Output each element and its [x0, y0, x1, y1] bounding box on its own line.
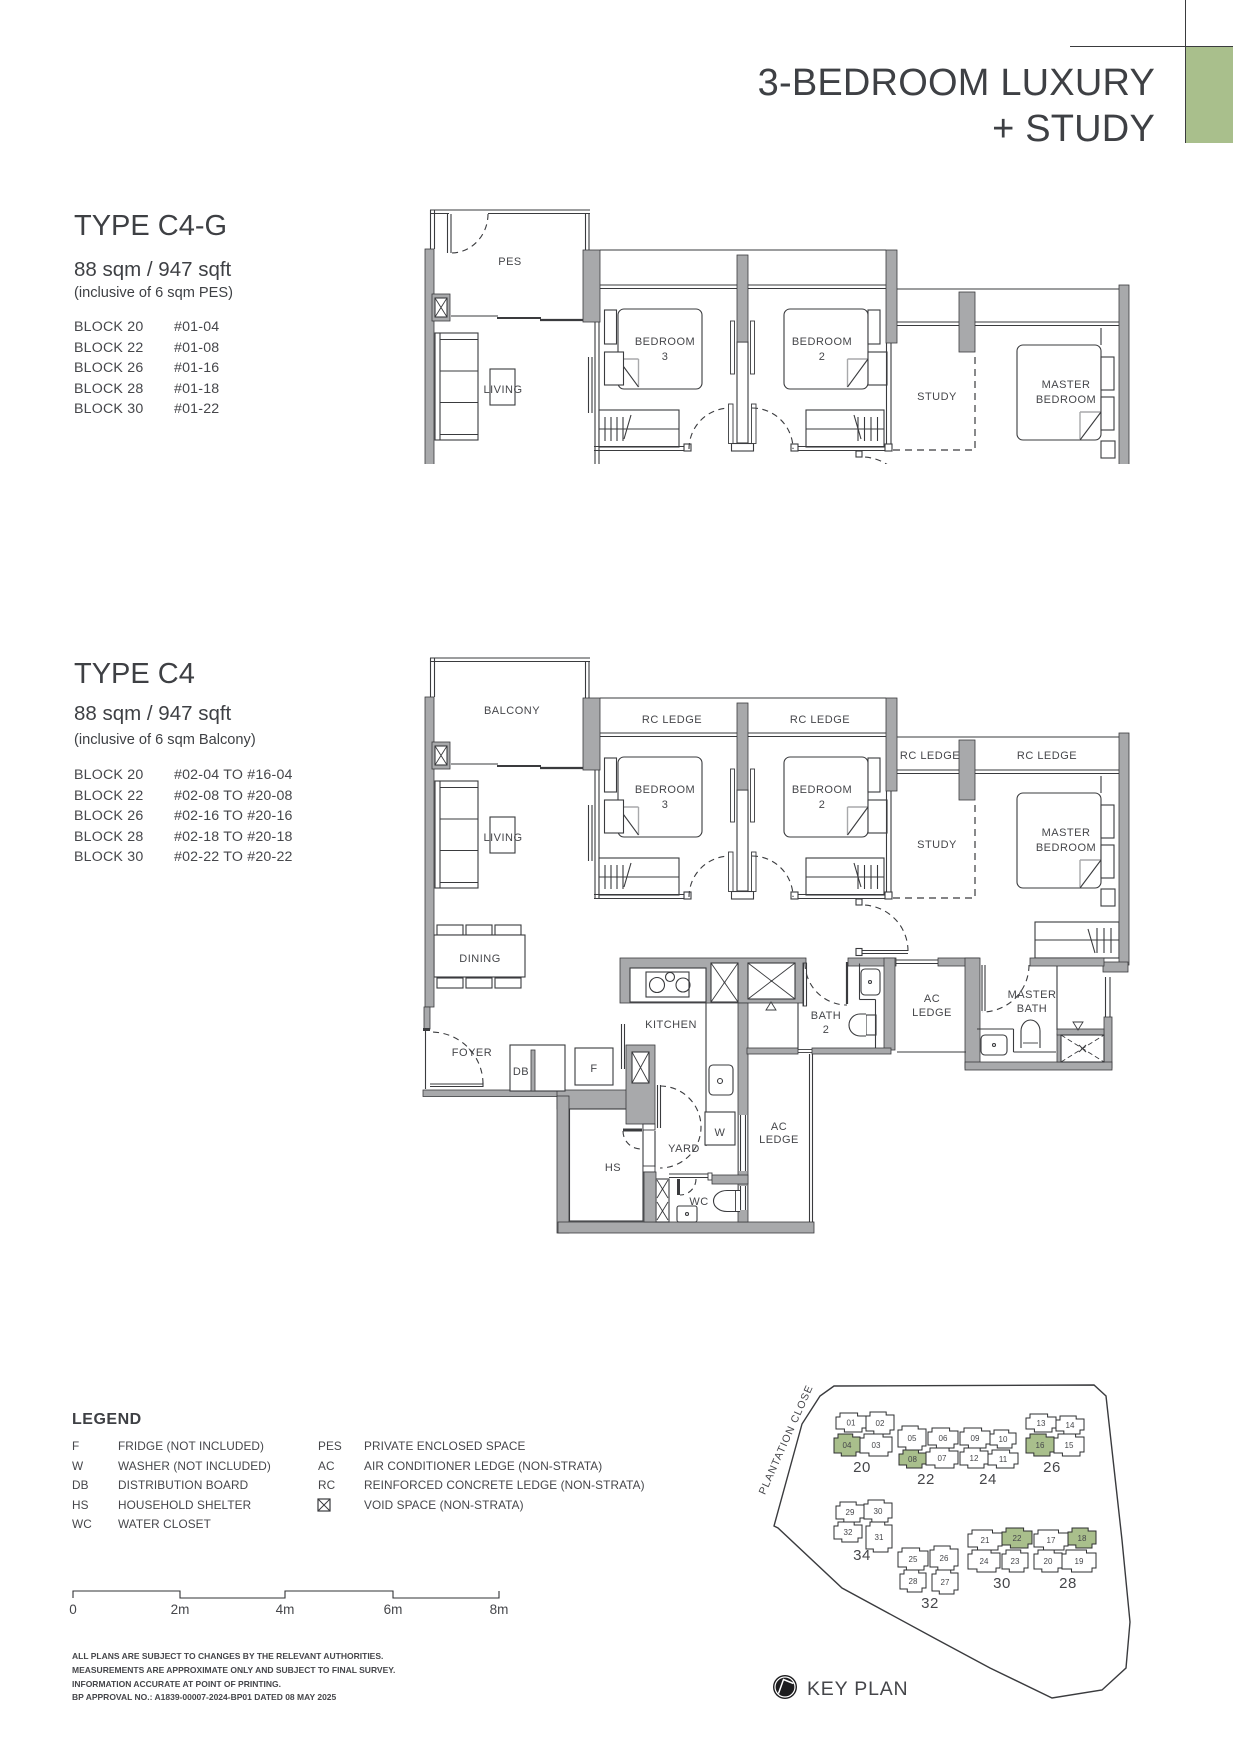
svg-text:23: 23 [1011, 1557, 1020, 1566]
svg-text:15: 15 [1065, 1441, 1074, 1450]
svg-text:F: F [590, 1063, 597, 1075]
svg-text:09: 09 [971, 1434, 980, 1443]
svg-text:27: 27 [941, 1578, 950, 1587]
svg-text:3: 3 [662, 351, 669, 363]
svg-text:DB: DB [513, 1066, 529, 1078]
svg-text:10: 10 [999, 1435, 1008, 1444]
svg-text:LIVING: LIVING [483, 832, 522, 844]
svg-text:11: 11 [999, 1455, 1008, 1464]
svg-text:LEDGE: LEDGE [759, 1134, 799, 1146]
svg-text:28: 28 [1059, 1575, 1077, 1592]
svg-text:22: 22 [917, 1471, 935, 1488]
svg-text:19: 19 [1075, 1557, 1084, 1566]
svg-text:26: 26 [1043, 1459, 1061, 1476]
svg-text:32: 32 [921, 1595, 939, 1612]
svg-text:BATH: BATH [1017, 1003, 1048, 1015]
svg-text:8m: 8m [490, 1602, 509, 1617]
svg-text:28: 28 [909, 1577, 918, 1586]
svg-text:18: 18 [1078, 1534, 1087, 1543]
svg-text:04: 04 [843, 1441, 852, 1450]
svg-text:6m: 6m [384, 1602, 403, 1617]
svg-text:KITCHEN: KITCHEN [645, 1019, 697, 1031]
svg-text:4m: 4m [276, 1602, 295, 1617]
svg-text:RC LEDGE: RC LEDGE [790, 714, 850, 726]
svg-text:25: 25 [909, 1555, 918, 1564]
svg-text:BEDROOM: BEDROOM [792, 784, 852, 796]
svg-text:BEDROOM: BEDROOM [1036, 842, 1096, 854]
svg-text:30: 30 [874, 1507, 883, 1516]
svg-text:12: 12 [970, 1454, 979, 1463]
svg-text:08: 08 [908, 1455, 917, 1464]
svg-text:BEDROOM: BEDROOM [635, 336, 695, 348]
svg-text:21: 21 [981, 1536, 990, 1545]
svg-text:MASTER: MASTER [1042, 379, 1091, 391]
svg-text:BEDROOM: BEDROOM [635, 784, 695, 796]
svg-text:DINING: DINING [459, 953, 501, 965]
svg-text:16: 16 [1036, 1441, 1045, 1450]
svg-text:AC: AC [771, 1121, 787, 1133]
svg-text:02: 02 [876, 1419, 885, 1428]
svg-text:BEDROOM: BEDROOM [1036, 394, 1096, 406]
svg-text:32: 32 [844, 1528, 853, 1537]
svg-text:05: 05 [908, 1434, 917, 1443]
svg-text:01: 01 [847, 1419, 856, 1428]
svg-text:2: 2 [819, 799, 826, 811]
svg-text:STUDY: STUDY [917, 391, 957, 403]
svg-text:BATH: BATH [811, 1010, 842, 1022]
svg-text:14: 14 [1066, 1421, 1075, 1430]
svg-text:22: 22 [1013, 1534, 1022, 1543]
svg-text:FOYER: FOYER [452, 1047, 492, 1059]
svg-text:31: 31 [875, 1533, 884, 1542]
svg-text:06: 06 [939, 1434, 948, 1443]
svg-text:LEDGE: LEDGE [912, 1007, 952, 1019]
svg-text:PES: PES [498, 256, 522, 268]
svg-text:STUDY: STUDY [917, 839, 957, 851]
svg-text:0: 0 [69, 1602, 77, 1617]
svg-text:26: 26 [940, 1554, 949, 1563]
svg-text:W: W [715, 1127, 726, 1139]
svg-text:KEY PLAN: KEY PLAN [807, 1678, 908, 1700]
svg-text:RC LEDGE: RC LEDGE [900, 750, 960, 762]
svg-text:YARD: YARD [668, 1143, 700, 1155]
svg-text:29: 29 [846, 1508, 855, 1517]
svg-text:20: 20 [1044, 1557, 1053, 1566]
svg-text:LIVING: LIVING [483, 384, 522, 396]
svg-text:2m: 2m [171, 1602, 190, 1617]
svg-text:20: 20 [853, 1459, 871, 1476]
svg-text:AC: AC [924, 993, 940, 1005]
svg-text:RC LEDGE: RC LEDGE [642, 714, 702, 726]
svg-text:13: 13 [1037, 1419, 1046, 1428]
svg-text:3: 3 [662, 799, 669, 811]
svg-text:WC: WC [689, 1196, 708, 1208]
svg-text:24: 24 [980, 1557, 989, 1566]
svg-text:2: 2 [823, 1024, 830, 1036]
svg-text:17: 17 [1047, 1536, 1056, 1545]
svg-text:24: 24 [979, 1471, 997, 1488]
svg-text:HS: HS [605, 1162, 621, 1174]
svg-text:30: 30 [993, 1575, 1011, 1592]
svg-text:07: 07 [938, 1454, 947, 1463]
svg-text:03: 03 [872, 1441, 881, 1450]
svg-text:BEDROOM: BEDROOM [792, 336, 852, 348]
svg-text:BALCONY: BALCONY [484, 705, 540, 717]
svg-text:34: 34 [853, 1547, 871, 1564]
svg-text:2: 2 [819, 351, 826, 363]
svg-text:MASTER: MASTER [1008, 989, 1057, 1001]
svg-text:MASTER: MASTER [1042, 827, 1091, 839]
svg-text:RC LEDGE: RC LEDGE [1017, 750, 1077, 762]
